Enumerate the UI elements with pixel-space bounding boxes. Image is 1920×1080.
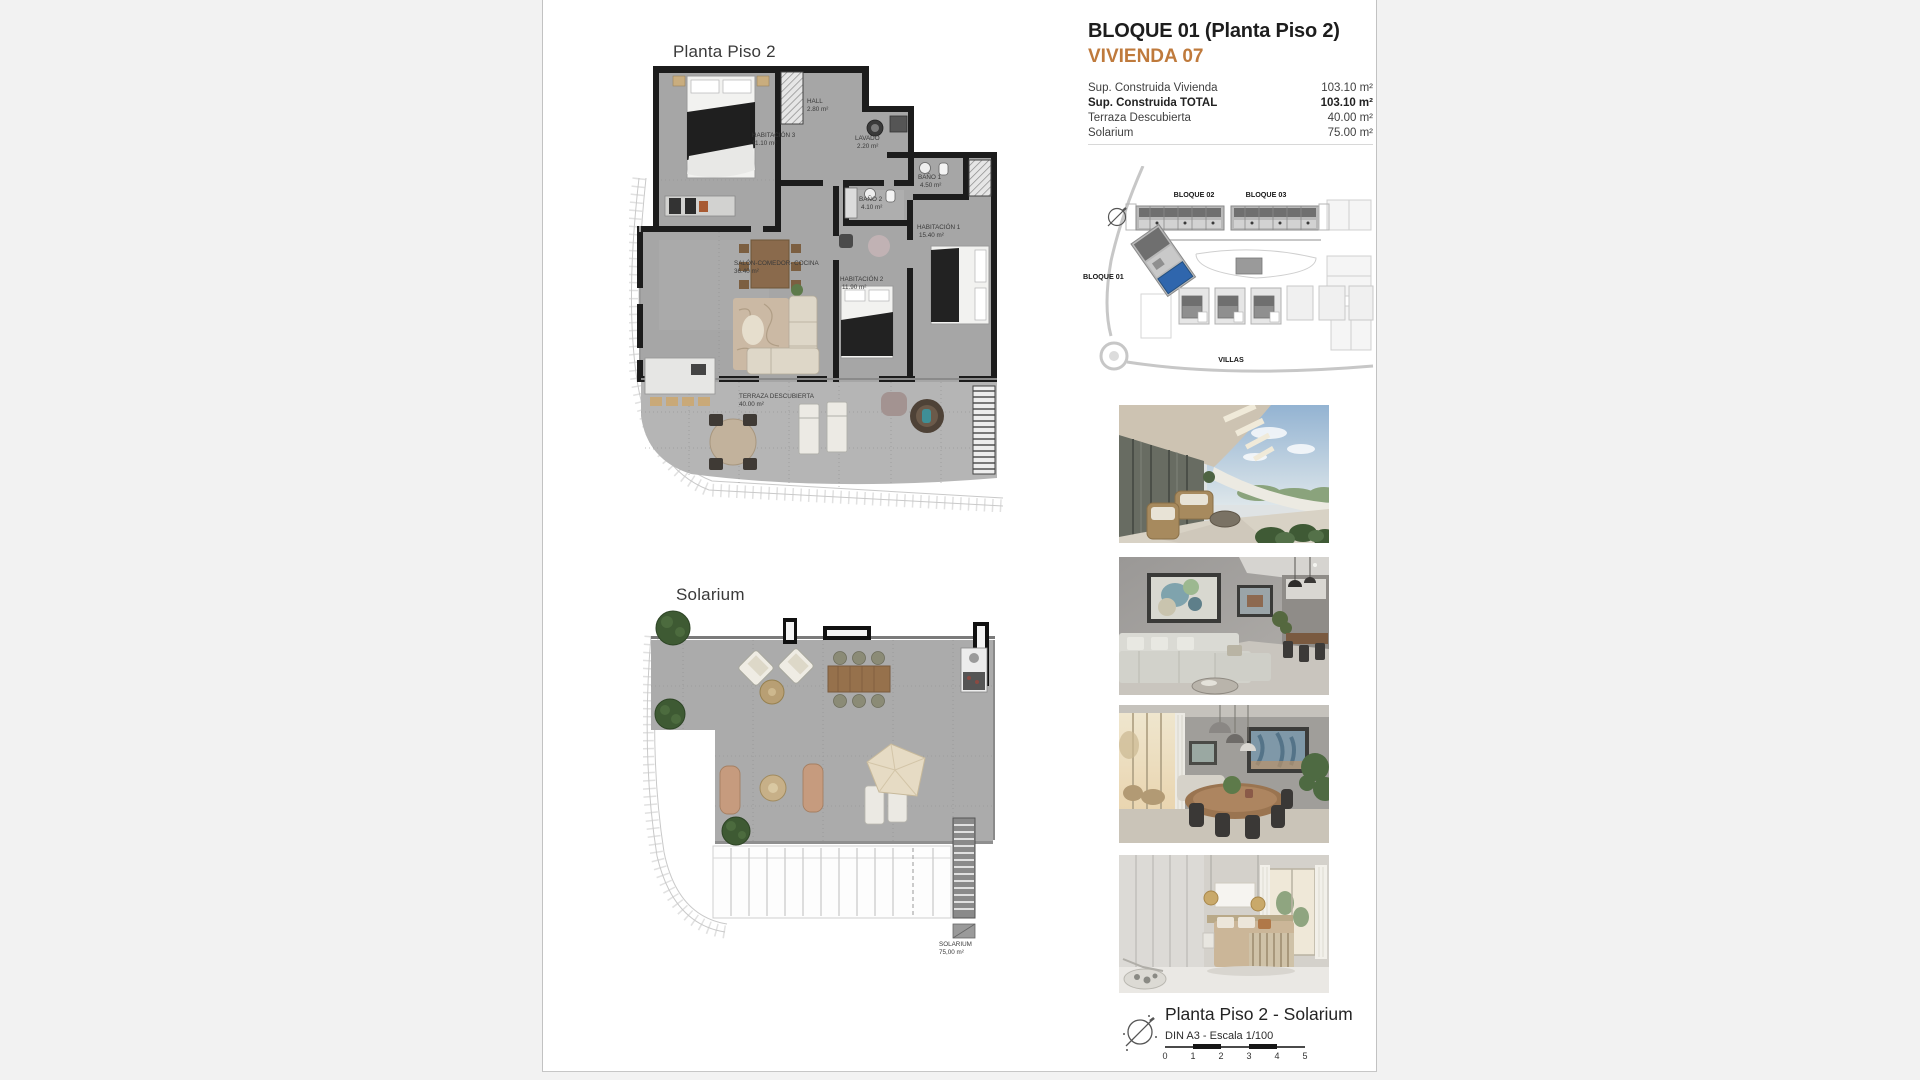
table-row: Terraza Descubierta 40.00 m² xyxy=(1088,111,1373,126)
svg-text:4.10 m²: 4.10 m² xyxy=(861,204,882,211)
row-label: Solarium xyxy=(1088,126,1133,141)
svg-text:SOLARIUM: SOLARIUM xyxy=(939,941,972,948)
bedroom3-furniture xyxy=(673,76,769,178)
terrace-photo xyxy=(1119,405,1329,543)
site-plan: BLOQUE 02 BLOQUE 03 BLOQUE 01 VILLAS xyxy=(1081,166,1376,388)
row-value: 103.10 m² xyxy=(1321,96,1373,111)
svg-text:LAVADO: LAVADO xyxy=(855,135,880,142)
pergola-slats xyxy=(713,846,951,918)
svg-text:4.50 m²: 4.50 m² xyxy=(920,182,941,189)
footer-title: Planta Piso 2 - Solarium xyxy=(1165,1004,1353,1025)
page-background: Planta Piso 2 xyxy=(0,0,1920,1080)
svg-text:SALÓN-COMEDOR- COCINA: SALÓN-COMEDOR- COCINA xyxy=(734,258,819,267)
unit-title: VIVIENDA 07 xyxy=(1088,46,1373,68)
bedroom-photo xyxy=(1119,855,1329,993)
scale-tick: 3 xyxy=(1246,1051,1251,1061)
scale-bar-segment xyxy=(1193,1044,1221,1049)
svg-text:BAÑO 1: BAÑO 1 xyxy=(918,172,942,181)
svg-text:BLOQUE 01: BLOQUE 01 xyxy=(1083,272,1124,281)
table-row: Sup. Construida Vivienda 103.10 m² xyxy=(1088,81,1373,96)
bloque01-building xyxy=(1131,224,1196,296)
surface-table: Sup. Construida Vivienda 103.10 m² Sup. … xyxy=(1088,81,1373,145)
svg-text:BLOQUE 03: BLOQUE 03 xyxy=(1246,190,1287,199)
svg-text:11.90 m²: 11.90 m² xyxy=(842,284,866,291)
svg-text:HALL: HALL xyxy=(807,98,823,105)
small-building xyxy=(1236,258,1262,274)
scale-bar: 0 1 2 3 4 5 xyxy=(1165,1043,1305,1063)
svg-text:BAÑO 2: BAÑO 2 xyxy=(859,194,883,203)
dining-room-photo xyxy=(1119,705,1329,843)
solarium-deck xyxy=(651,636,995,844)
svg-text:2.80 m²: 2.80 m² xyxy=(807,106,828,113)
svg-text:36.40 m²: 36.40 m² xyxy=(734,268,759,275)
scale-bar-segment xyxy=(1249,1044,1277,1049)
row-value: 40.00 m² xyxy=(1328,111,1373,126)
svg-text:2.20 m²: 2.20 m² xyxy=(857,143,878,150)
svg-text:HABITACIÓN 2: HABITACIÓN 2 xyxy=(840,274,884,283)
svg-text:HABITACIÓN 3: HABITACIÓN 3 xyxy=(752,130,796,139)
bloque02-building xyxy=(1126,204,1224,230)
plan2-title: Solarium xyxy=(676,585,745,605)
scale-bar-line xyxy=(1165,1046,1305,1048)
table-row: Sup. Construida TOTAL 103.10 m² xyxy=(1088,96,1373,111)
bloque03-building xyxy=(1231,204,1329,230)
floorplan-solarium: SOLARIUM 75,00 m² xyxy=(643,606,1015,1068)
plan1-title: Planta Piso 2 xyxy=(673,42,776,62)
scale-tick: 4 xyxy=(1274,1051,1279,1061)
plan-sheet: Planta Piso 2 xyxy=(542,0,1377,1072)
table-row: Solarium 75.00 m² xyxy=(1088,126,1373,141)
svg-text:TERRAZA DESCUBIERTA: TERRAZA DESCUBIERTA xyxy=(739,393,815,400)
scale-tick: 0 xyxy=(1162,1051,1167,1061)
row-value: 75.00 m² xyxy=(1328,126,1373,141)
block-title: BLOQUE 01 (Planta Piso 2) xyxy=(1088,20,1373,43)
svg-text:VILLAS: VILLAS xyxy=(1218,355,1244,364)
living-room-photo xyxy=(1119,557,1329,695)
floorplan-piso2: HABITACIÓN 311.10 m² HALL2.80 m² LAVADO2… xyxy=(629,60,1021,512)
svg-text:75,00 m²: 75,00 m² xyxy=(939,949,964,956)
svg-text:40.00 m²: 40.00 m² xyxy=(739,401,764,408)
row-value: 103.10 m² xyxy=(1321,81,1373,96)
scale-tick: 1 xyxy=(1190,1051,1195,1061)
scale-tick: 2 xyxy=(1218,1051,1223,1061)
roundabout-center xyxy=(1109,351,1119,361)
svg-text:HABITACIÓN 1: HABITACIÓN 1 xyxy=(917,222,961,231)
scale-tick: 5 xyxy=(1302,1051,1307,1061)
svg-text:15.40 m²: 15.40 m² xyxy=(919,232,944,239)
solarium-stairs xyxy=(953,818,975,938)
row-label: Sup. Construida TOTAL xyxy=(1088,96,1217,111)
footer-scale-label: DIN A3 - Escala 1/100 xyxy=(1165,1030,1273,1042)
bedroom1-furniture xyxy=(931,246,989,324)
info-panel: BLOQUE 01 (Planta Piso 2) VIVIENDA 07 Su… xyxy=(1088,20,1373,145)
svg-text:BLOQUE 02: BLOQUE 02 xyxy=(1174,190,1215,199)
svg-text:11.10 m²: 11.10 m² xyxy=(752,140,776,147)
row-label: Terraza Descubierta xyxy=(1088,111,1191,126)
villas-row xyxy=(1179,286,1373,324)
solarium-label: SOLARIUM 75,00 m² xyxy=(939,941,972,956)
footer-compass-icon xyxy=(1119,1012,1161,1054)
row-label: Sup. Construida Vivienda xyxy=(1088,81,1218,96)
